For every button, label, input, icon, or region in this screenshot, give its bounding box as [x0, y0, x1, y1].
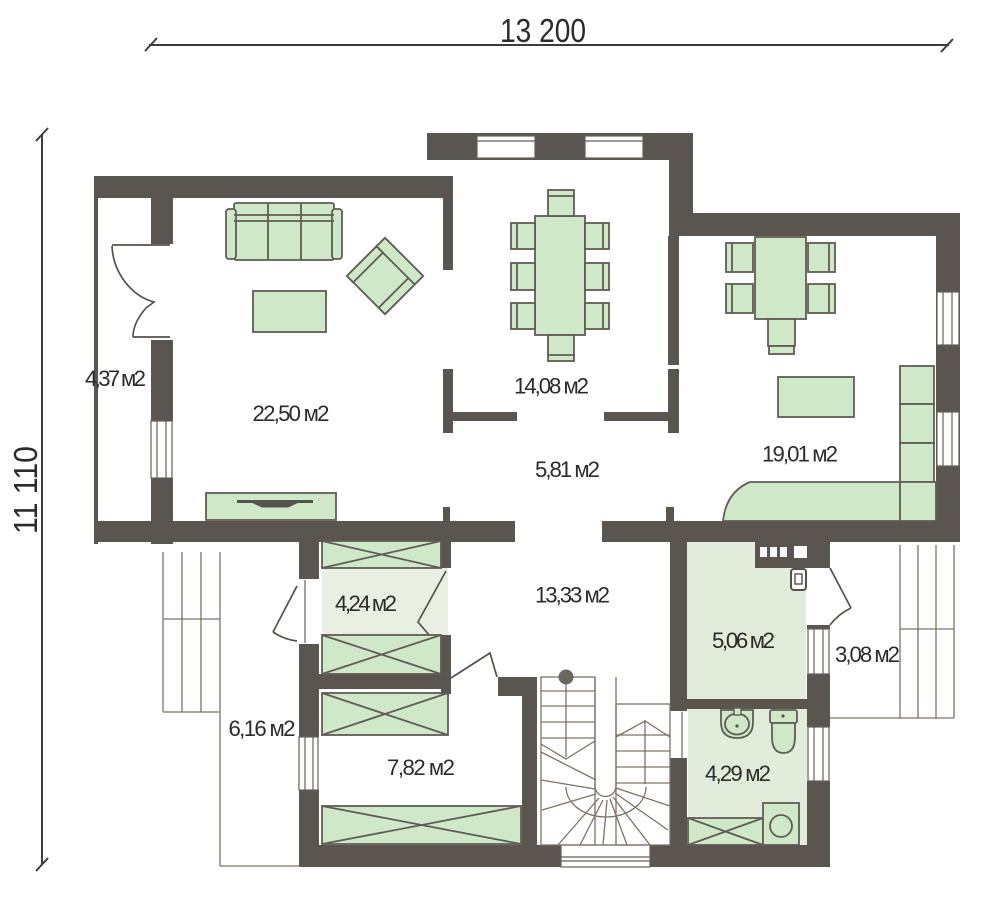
- svg-text:11 110: 11 110: [7, 446, 44, 534]
- svg-text:4,24 м2: 4,24 м2: [335, 591, 397, 616]
- svg-text:19,01 м2: 19,01 м2: [762, 442, 838, 467]
- svg-text:4,29 м2: 4,29 м2: [705, 761, 771, 786]
- svg-text:5,06 м2: 5,06 м2: [712, 628, 775, 653]
- svg-text:6,16 м2: 6,16 м2: [229, 716, 296, 741]
- svg-text:3,08 м2: 3,08 м2: [835, 642, 900, 667]
- svg-text:7,82 м2: 7,82 м2: [387, 755, 455, 780]
- svg-text:14,08 м2: 14,08 м2: [514, 374, 589, 399]
- svg-text:13,33 м2: 13,33 м2: [535, 583, 610, 608]
- svg-text:22,50 м2: 22,50 м2: [253, 401, 330, 426]
- svg-text:5,81 м2: 5,81 м2: [535, 457, 600, 482]
- svg-text:13 200: 13 200: [500, 12, 586, 49]
- svg-text:4,37 м2: 4,37 м2: [85, 366, 146, 391]
